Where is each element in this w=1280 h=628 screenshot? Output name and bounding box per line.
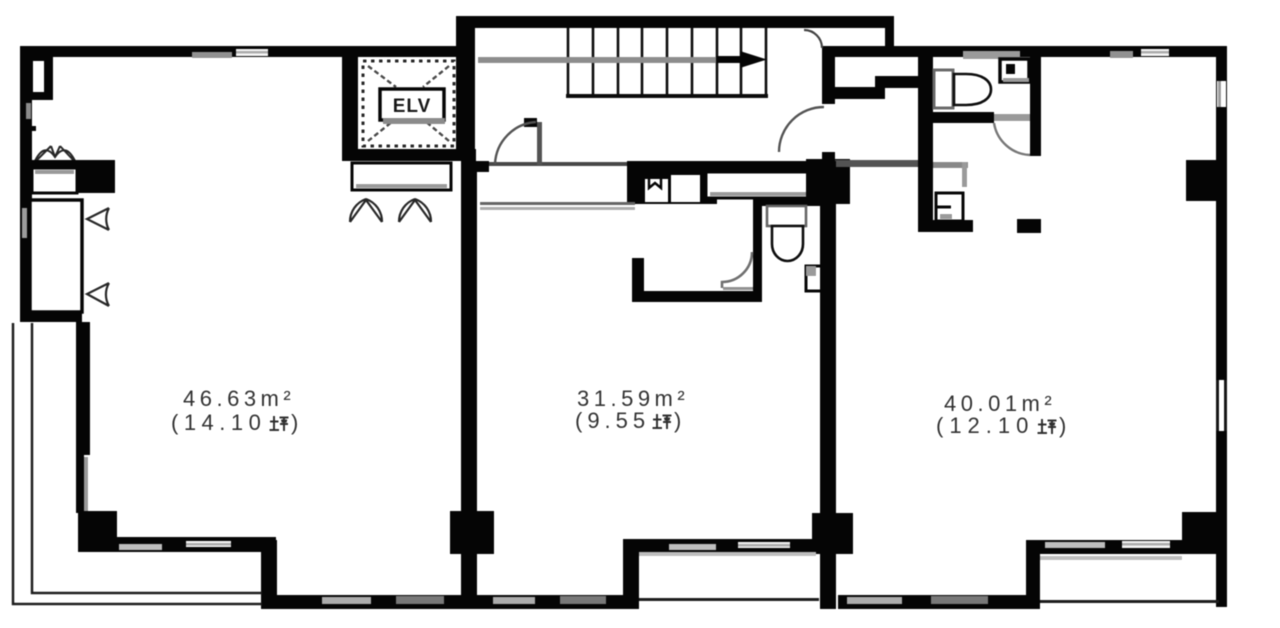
svg-text:ELV: ELV: [393, 96, 432, 117]
svg-text:): ): [674, 408, 681, 433]
svg-text:): ): [291, 410, 298, 435]
svg-text:): ): [1059, 413, 1066, 438]
svg-text:(14.10: (14.10: [171, 410, 266, 435]
svg-text:(12.10: (12.10: [936, 413, 1034, 438]
svg-text:46.63m²: 46.63m²: [183, 386, 295, 411]
svg-text:(9.55: (9.55: [575, 408, 650, 433]
